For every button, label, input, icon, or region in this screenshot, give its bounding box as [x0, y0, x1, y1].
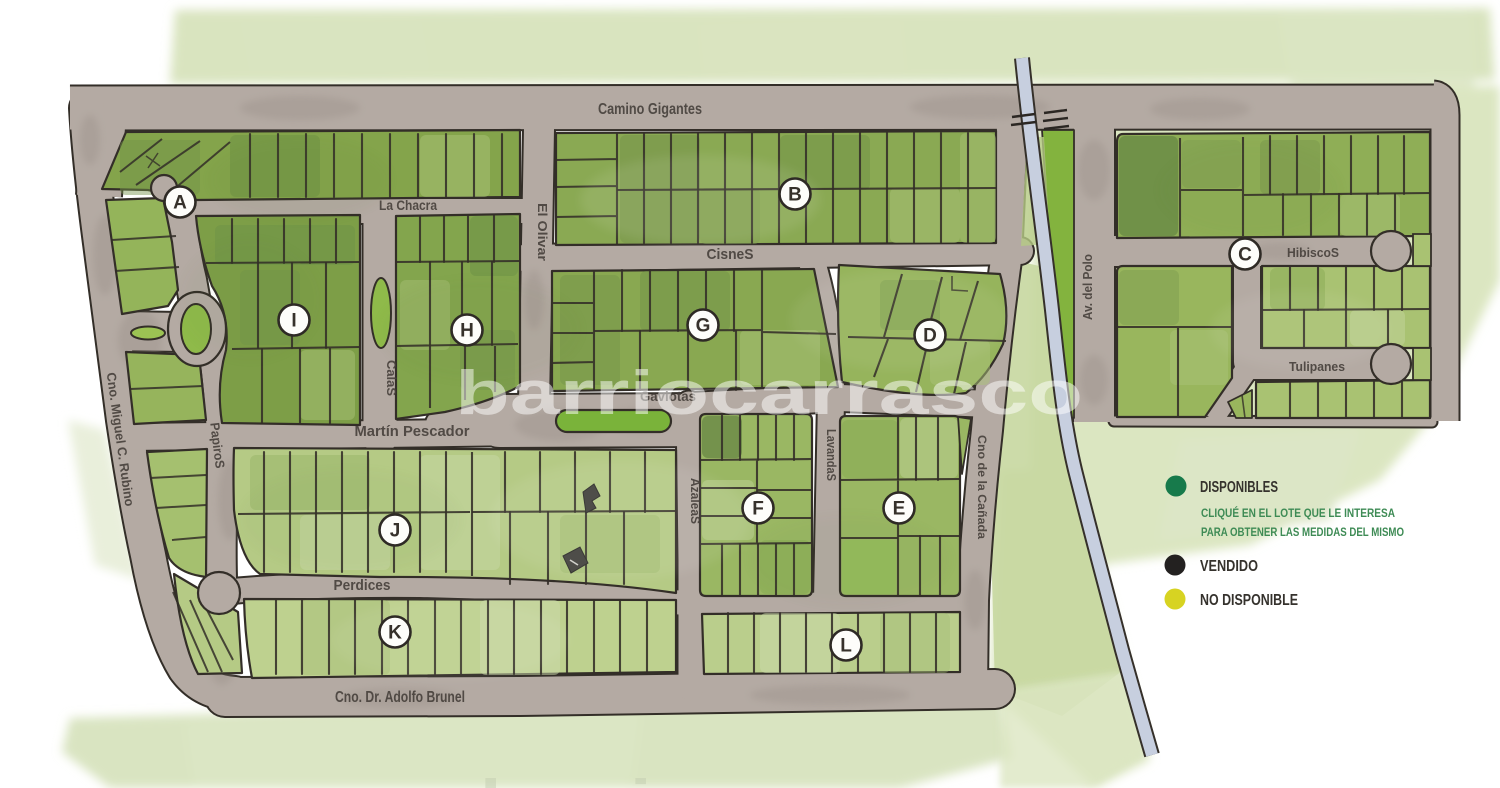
svg-text:A: A [173, 193, 187, 214]
svg-text:C: C [1238, 245, 1252, 266]
svg-text:J: J [390, 521, 401, 542]
svg-text:Martín Pescador: Martín Pescador [355, 423, 470, 440]
svg-text:E: E [893, 499, 906, 520]
svg-text:L: L [840, 636, 852, 657]
svg-text:barriocarrasco: barriocarrasco [455, 359, 1083, 428]
svg-text:VENDIDO: VENDIDO [1200, 558, 1258, 575]
svg-text:HibiscoS: HibiscoS [1287, 245, 1339, 260]
svg-text:G: G [696, 316, 711, 337]
svg-text:Cno. Dr. Adolfo Brunel: Cno. Dr. Adolfo Brunel [335, 689, 465, 706]
svg-text:La Chacra: La Chacra [379, 197, 437, 213]
svg-text:NO DISPONIBLE: NO DISPONIBLE [1200, 592, 1298, 609]
svg-text:B: B [788, 185, 802, 206]
svg-text:AzaleaS: AzaleaS [688, 478, 703, 524]
svg-text:LavandaS: LavandaS [824, 429, 839, 481]
svg-text:D: D [923, 326, 937, 347]
svg-text:Av. del Polo: Av. del Polo [1080, 254, 1095, 320]
svg-text:DISPONIBLES: DISPONIBLES [1200, 479, 1278, 496]
svg-text:K: K [388, 623, 402, 644]
svg-text:Camino Gigantes: Camino Gigantes [598, 101, 702, 118]
svg-text:Tulipanes: Tulipanes [1289, 359, 1345, 374]
svg-text:CalaS: CalaS [384, 360, 399, 396]
svg-text:F: F [752, 499, 764, 520]
svg-text:Cno de la Cañada: Cno de la Cañada [975, 435, 989, 539]
svg-text:CisneS: CisneS [707, 246, 754, 263]
svg-text:barriocarras: barriocarras [480, 768, 930, 788]
svg-text:CLIQUÉ EN EL LOTE QUE LE INTER: CLIQUÉ EN EL LOTE QUE LE INTERESA [1201, 505, 1395, 520]
svg-text:H: H [460, 321, 474, 342]
svg-text:I: I [291, 311, 296, 332]
svg-text:PARA OBTENER LAS MEDIDAS DEL M: PARA OBTENER LAS MEDIDAS DEL MISMO [1201, 525, 1404, 539]
svg-text:Perdices: Perdices [334, 577, 391, 594]
svg-text:El Olivar: El Olivar [535, 203, 550, 261]
